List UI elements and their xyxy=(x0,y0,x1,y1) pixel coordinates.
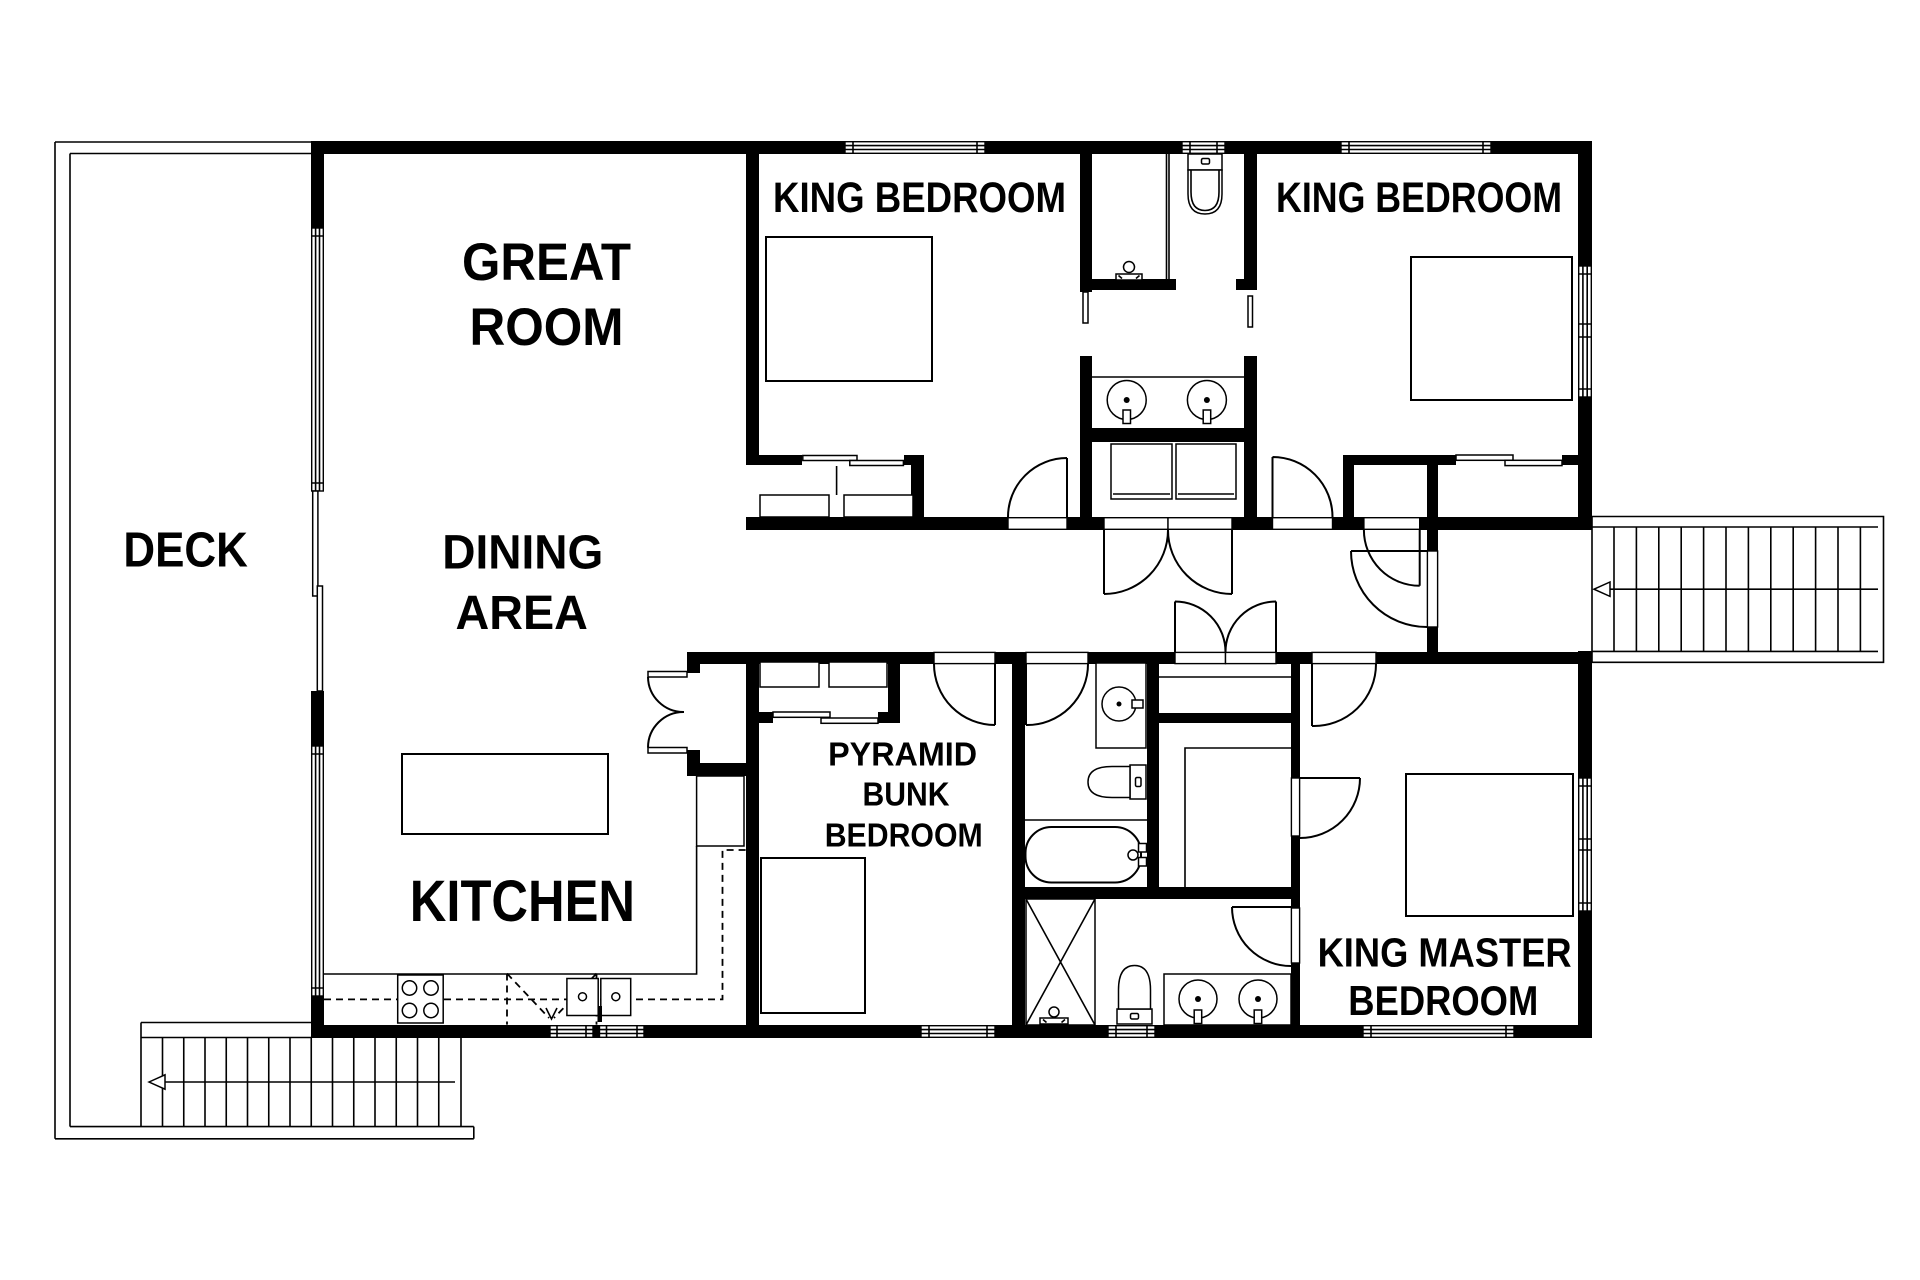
svg-text:KITCHEN: KITCHEN xyxy=(410,869,635,934)
svg-text:BUNK: BUNK xyxy=(863,777,950,814)
svg-text:DECK: DECK xyxy=(123,524,248,578)
svg-text:AREA: AREA xyxy=(456,586,588,640)
svg-text:KING BEDROOM: KING BEDROOM xyxy=(773,175,1066,222)
svg-text:PYRAMID: PYRAMID xyxy=(828,736,977,773)
svg-text:KING MASTER: KING MASTER xyxy=(1318,930,1572,976)
svg-text:DINING: DINING xyxy=(442,525,603,579)
svg-text:BEDROOM: BEDROOM xyxy=(825,817,983,854)
svg-text:KING BEDROOM: KING BEDROOM xyxy=(1276,175,1562,222)
svg-text:ROOM: ROOM xyxy=(470,298,624,357)
svg-text:BEDROOM: BEDROOM xyxy=(1348,977,1538,1024)
svg-text:GREAT: GREAT xyxy=(462,233,631,292)
